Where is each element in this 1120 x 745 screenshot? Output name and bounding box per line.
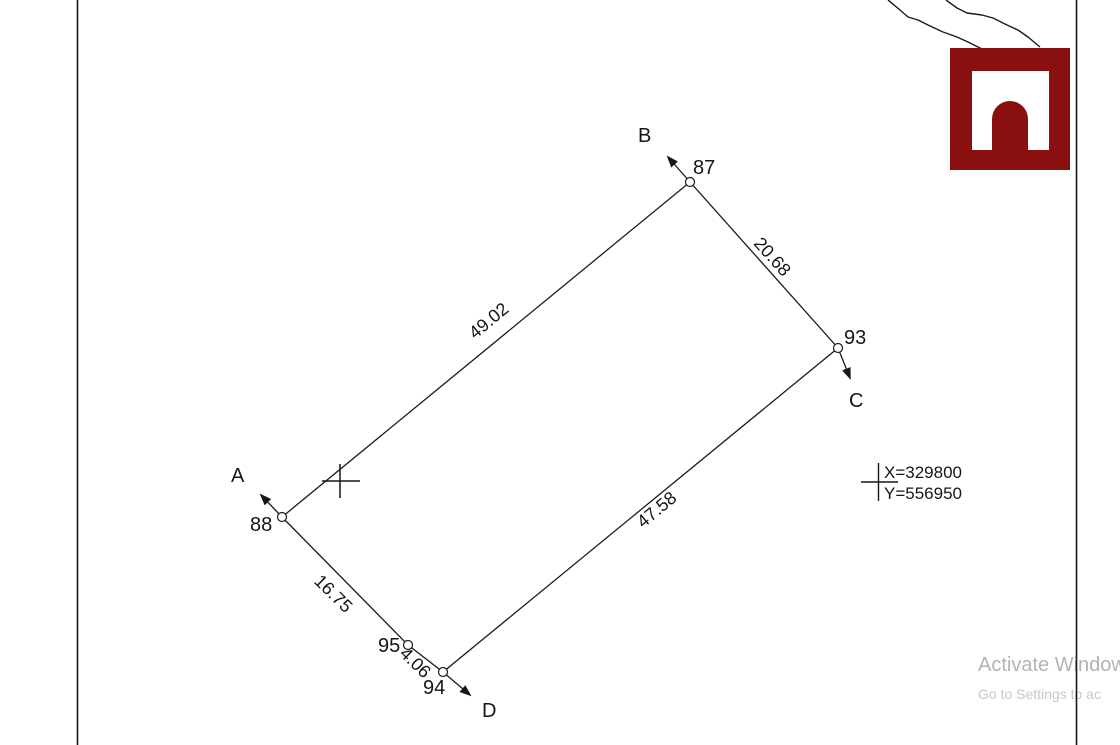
point-label-94: 94 — [423, 677, 445, 700]
coordinate-readout-y: Y=556950 — [884, 484, 962, 504]
point-label-93: 93 — [844, 327, 866, 350]
logo-arch-shape — [992, 101, 1028, 150]
point-label-88: 88 — [250, 514, 272, 537]
point-marker-93 — [834, 344, 843, 353]
coordinate-readout-x: X=329800 — [884, 463, 962, 483]
ray-to-D-arrow — [443, 672, 470, 695]
point-marker-88 — [278, 513, 287, 522]
direction-label-a: A — [231, 465, 244, 488]
arch-logo — [950, 48, 1070, 170]
survey-plot-drawing — [0, 0, 1120, 745]
direction-label-b: B — [638, 125, 651, 148]
direction-label-c: C — [849, 390, 863, 413]
point-label-87: 87 — [693, 157, 715, 180]
cad-drawing-canvas[interactable]: Activate Windows Go to Settings to ac — [0, 0, 1120, 745]
boundary-squiggle-line-2 — [946, 0, 1040, 47]
boundary-squiggle-line-1 — [888, 0, 982, 49]
point-marker-94 — [439, 668, 448, 677]
parcel-outline — [282, 182, 838, 672]
direction-label-d: D — [482, 700, 496, 723]
